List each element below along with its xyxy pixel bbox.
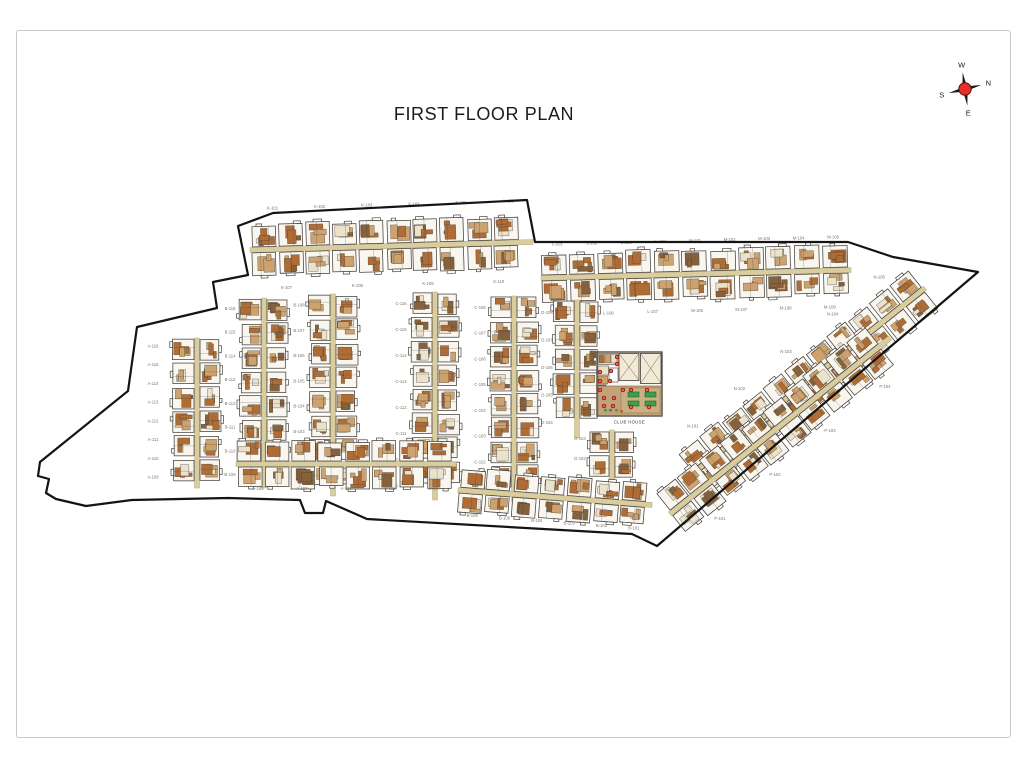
unit-plan (409, 317, 432, 338)
unit-label: C-116 (395, 301, 407, 306)
unit-plan (438, 390, 459, 411)
unit-label: B-106 (467, 513, 479, 518)
unit-label: B-111 (225, 425, 236, 430)
unit-plan (593, 504, 618, 526)
unit-plan (541, 252, 566, 275)
unit-plan (587, 432, 609, 453)
unit-plan (400, 438, 424, 461)
unit-label: M-108 (780, 306, 793, 311)
compass-letter: W (958, 61, 966, 70)
unit-label: A-106 (340, 486, 352, 491)
unit-plan (794, 242, 819, 268)
unit-plan (550, 374, 574, 395)
unit-label: B-104 (531, 518, 543, 523)
unit-label: C-106 (474, 356, 486, 361)
unit-label: N-105 (873, 275, 885, 280)
unit-label: B-115 (225, 330, 237, 335)
unit-plan (359, 249, 383, 275)
unit-plan (410, 293, 432, 314)
unit-plan (309, 343, 330, 364)
unit-plan (200, 340, 221, 361)
unit-plan (252, 252, 276, 278)
unit-plan (336, 345, 361, 366)
unit-plan (240, 420, 261, 441)
unit-label: K-107 (281, 285, 293, 290)
unit-label: M-106 (691, 308, 704, 313)
unit-plan (488, 346, 511, 367)
unit-label: B-113 (225, 377, 237, 382)
unit-plan (598, 250, 623, 273)
unit-label: B-106 (293, 353, 305, 358)
unit-plan (237, 299, 261, 320)
unit-plan (359, 218, 383, 244)
unit-plan (438, 341, 461, 362)
unit-label: B-107 (293, 328, 305, 333)
unit-plan (308, 320, 330, 341)
unit-label: D-107 (541, 337, 553, 342)
unit-plan (267, 372, 288, 393)
club-house-label: CLUB HOUSE (614, 420, 645, 425)
unit-plan (240, 324, 261, 345)
unit-plan (170, 363, 194, 384)
unit-plan (267, 300, 290, 321)
unit-label: N-103 (780, 349, 792, 354)
unit-label: M-105 (827, 235, 840, 240)
unit-plan (200, 363, 223, 384)
unit-label: M-103 (758, 236, 771, 241)
unit-plan (172, 435, 194, 456)
unit-label: B-107 (428, 486, 440, 491)
unit-label: P-104 (879, 384, 891, 389)
unit-label: C-111 (396, 431, 407, 436)
unit-plan (461, 467, 486, 489)
unit-label: B-110 (225, 448, 237, 453)
unit-plan (332, 250, 356, 274)
unit-label: A-114 (148, 381, 160, 386)
unit-plan (488, 442, 511, 463)
floor-plan-page: FIRST FLOOR PLAN K-101K-102K-103K-104K-1… (0, 0, 1027, 768)
unit-plan (553, 325, 574, 346)
unit-plan (409, 342, 432, 363)
unit-plan (554, 397, 574, 418)
unit-label: D-108 (541, 310, 553, 315)
unit-plan (267, 420, 289, 441)
unit-label: N-101 (687, 423, 699, 428)
unit-plan (372, 438, 396, 461)
unit-plan (494, 215, 518, 240)
unit-label: P-102 (769, 472, 781, 477)
unit-plan (517, 371, 541, 392)
unit-plan (292, 438, 316, 461)
unit-plan (580, 326, 600, 347)
site-plan-drawing: K-101K-102K-103K-104K-105K-106K-107K-108… (0, 0, 1027, 768)
unit-plan (252, 223, 276, 247)
unit-plan (280, 252, 304, 276)
unit-label: D-105 (541, 393, 553, 398)
unit-plan (517, 297, 539, 318)
unit-label: A-112 (148, 418, 160, 423)
building-strip-col-6 (550, 300, 600, 438)
unit-plan (468, 246, 492, 272)
unit-plan (766, 275, 791, 300)
unit-plan (765, 244, 790, 270)
unit-plan (307, 367, 330, 388)
unit-plan (278, 221, 302, 246)
unit-plan (739, 245, 764, 270)
compass-center (959, 83, 971, 95)
unit-label: K-109 (422, 281, 434, 286)
unit-plan (413, 216, 437, 242)
unit-label: D-102 (574, 456, 586, 461)
unit-label: C-102 (474, 459, 486, 464)
unit-label: A-115 (148, 362, 160, 367)
unit-label: D-106 (541, 365, 553, 370)
unit-plan (517, 393, 540, 414)
building-strip-col-1 (170, 338, 224, 488)
compass-rose: NESW (939, 61, 991, 118)
unit-label: K-102 (314, 204, 326, 209)
unit-label: D-104 (541, 420, 553, 425)
unit-plan (237, 438, 261, 461)
unit-plan (200, 460, 222, 481)
unit-label: C-112 (395, 405, 407, 410)
unit-plan (438, 317, 462, 338)
unit-plan (517, 345, 540, 366)
unit-plan (489, 395, 511, 416)
unit-plan (267, 323, 291, 344)
unit-plan (306, 251, 330, 277)
unit-label: C-107 (474, 331, 486, 336)
unit-label: B-116 (225, 306, 237, 311)
unit-label: C-108 (474, 305, 486, 310)
unit-plan (170, 388, 194, 409)
unit-label: C-103 (474, 434, 486, 439)
unit-label: B-103 (293, 429, 305, 434)
unit-plan (494, 245, 518, 270)
unit-label: M-107 (735, 307, 748, 312)
unit-label: M-104 (793, 235, 806, 240)
unit-plan (332, 221, 356, 245)
unit-label: B-112 (225, 401, 237, 406)
unit-plan (622, 479, 647, 502)
unit-label: D-103 (574, 436, 586, 441)
building-strip-top-row-east (540, 242, 851, 307)
unit-plan (309, 416, 330, 437)
unit-plan (306, 295, 330, 316)
building-strip-top-row-west (249, 213, 534, 279)
unit-plan (484, 495, 509, 516)
unit-plan (413, 248, 437, 273)
unit-plan (237, 396, 261, 417)
unit-plan (823, 243, 848, 268)
unit-plan (387, 218, 411, 243)
unit-label: A-113 (148, 400, 160, 405)
unit-plan (615, 432, 636, 453)
unit-label: A-109 (147, 475, 159, 480)
unit-plan (569, 252, 594, 275)
unit-plan (488, 322, 511, 343)
unit-plan (170, 339, 194, 360)
unit-plan (336, 391, 357, 412)
unit-label: A-116 (148, 343, 160, 348)
unit-plan (170, 412, 194, 433)
unit-label: M-109 (824, 305, 837, 310)
unit-label: N-102 (734, 386, 746, 391)
unit-label: B-108 (384, 486, 396, 491)
unit-label: A-110 (148, 456, 160, 461)
unit-label: K-108 (352, 283, 364, 288)
unit-plan (711, 248, 736, 270)
unit-label: P-101 (714, 516, 726, 521)
unit-plan (439, 215, 463, 242)
unit-plan (265, 439, 289, 461)
unit-plan (468, 216, 492, 240)
unit-label: B-102 (596, 523, 608, 528)
unit-label: B-104 (293, 404, 305, 409)
unit-plan (336, 297, 360, 318)
unit-label: B-114 (225, 353, 237, 358)
unit-label: K-101 (267, 205, 279, 210)
unit-plan (267, 348, 288, 369)
unit-label: B-105 (293, 378, 305, 383)
unit-plan (200, 411, 224, 432)
unit-plan (580, 302, 601, 323)
unit-plan (488, 297, 511, 318)
compass-letter: S (939, 90, 944, 99)
unit-label: L-106 (603, 310, 614, 315)
compass-letter: E (966, 108, 971, 117)
unit-plan (411, 366, 432, 387)
unit-label: C-104 (474, 408, 486, 413)
unit-label: B-105 (499, 516, 511, 521)
unit-plan (336, 367, 359, 388)
unit-plan (654, 248, 679, 272)
unit-plan (265, 467, 289, 489)
unit-plan (336, 319, 360, 340)
unit-plan (739, 275, 764, 300)
unit-plan (410, 389, 432, 410)
unit-plan (387, 248, 411, 271)
unit-plan (517, 417, 541, 438)
unit-plan (428, 439, 452, 461)
unit-plan (306, 219, 330, 246)
unit-plan (318, 440, 342, 461)
unit-label: A-108 (252, 486, 264, 491)
unit-plan (567, 474, 592, 497)
unit-plan (681, 248, 706, 271)
unit-plan (346, 440, 370, 461)
unit-label: B-109 (224, 472, 236, 477)
unit-plan (200, 437, 221, 458)
building-strip-bottom-row-west (236, 438, 456, 492)
unit-plan (487, 370, 511, 391)
unit-plan (267, 396, 290, 417)
unit-plan (240, 348, 261, 369)
unit-label: A-111 (148, 437, 159, 442)
unit-plan (615, 457, 635, 478)
unit-plan (553, 349, 574, 370)
club-house: CLUB HOUSE (597, 352, 662, 425)
unit-label: B-103 (564, 521, 576, 526)
unit-plan (438, 414, 462, 435)
unit-plan (438, 365, 459, 386)
unit-label: B-108 (293, 303, 305, 308)
unit-plan (517, 322, 541, 343)
unit-plan (517, 442, 540, 463)
unit-label: N-104 (827, 312, 839, 317)
unit-plan (619, 506, 644, 527)
unit-plan (587, 456, 609, 477)
unit-plan (307, 392, 330, 413)
unit-label: B-101 (628, 526, 640, 531)
unit-plan (599, 279, 624, 302)
unit-label: C-114 (395, 353, 407, 358)
unit-plan (540, 474, 565, 495)
unit-label: A-107 (296, 486, 308, 491)
unit-label: C-105 (474, 382, 486, 387)
unit-plan (625, 247, 650, 273)
unit-plan (239, 372, 261, 393)
unit-plan (336, 416, 359, 437)
unit-plan (795, 274, 820, 297)
unit-label: K-110 (493, 279, 505, 284)
unit-plan (200, 387, 222, 408)
unit-plan (710, 276, 735, 302)
unit-plan (683, 277, 708, 300)
unit-plan (440, 247, 464, 274)
unit-plan (627, 278, 652, 302)
unit-plan (171, 460, 194, 481)
unit-plan (438, 294, 459, 315)
unit-label: C-113 (395, 379, 407, 384)
unit-plan (489, 417, 511, 438)
unit-label: C-115 (395, 327, 407, 332)
unit-plan (551, 301, 574, 322)
unit-label: P-103 (824, 428, 836, 433)
unit-plan (654, 277, 679, 302)
unit-plan (824, 273, 849, 296)
unit-plan (410, 413, 432, 434)
unit-plan (595, 478, 620, 499)
compass-letter: N (986, 79, 991, 88)
unit-plan (400, 467, 424, 490)
unit-label: L-107 (647, 309, 658, 314)
